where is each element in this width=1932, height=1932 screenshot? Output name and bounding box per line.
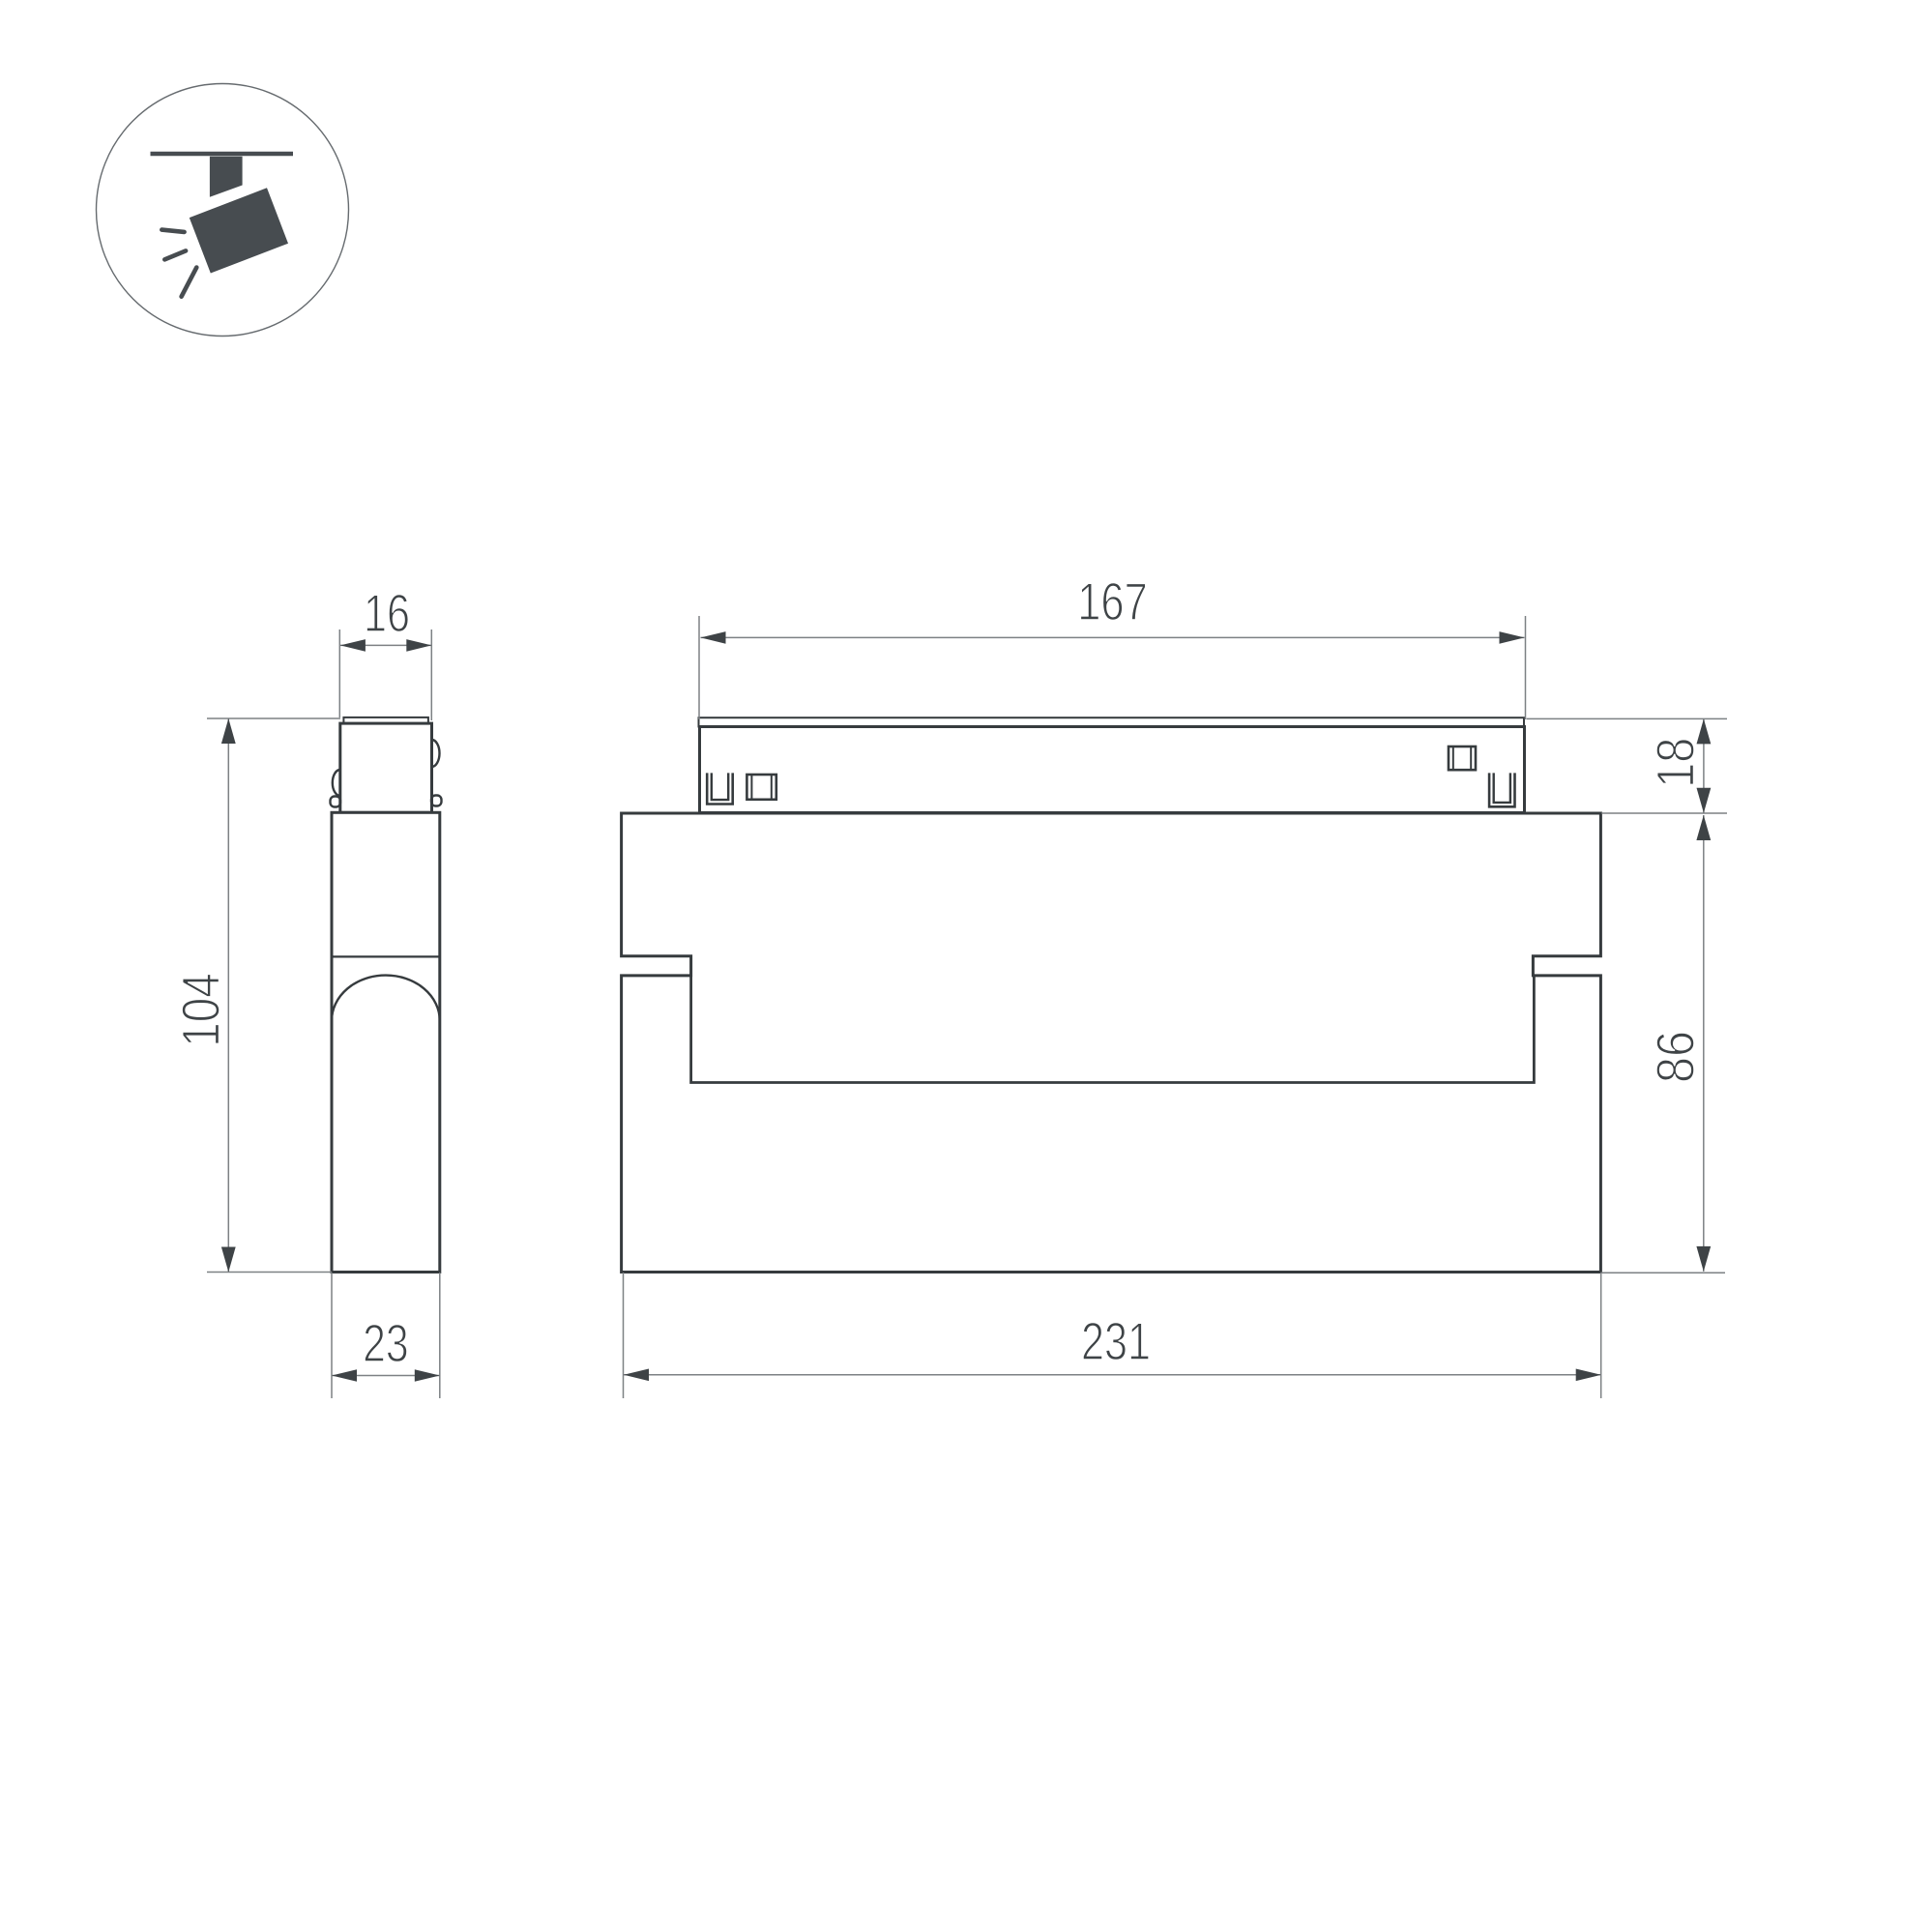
- svg-text:86: 86: [1646, 1031, 1706, 1083]
- svg-text:167: 167: [1077, 571, 1148, 631]
- svg-text:16: 16: [364, 583, 410, 643]
- svg-text:231: 231: [1081, 1311, 1151, 1371]
- svg-text:23: 23: [363, 1313, 409, 1373]
- svg-text:18: 18: [1646, 738, 1706, 788]
- svg-text:104: 104: [171, 973, 231, 1047]
